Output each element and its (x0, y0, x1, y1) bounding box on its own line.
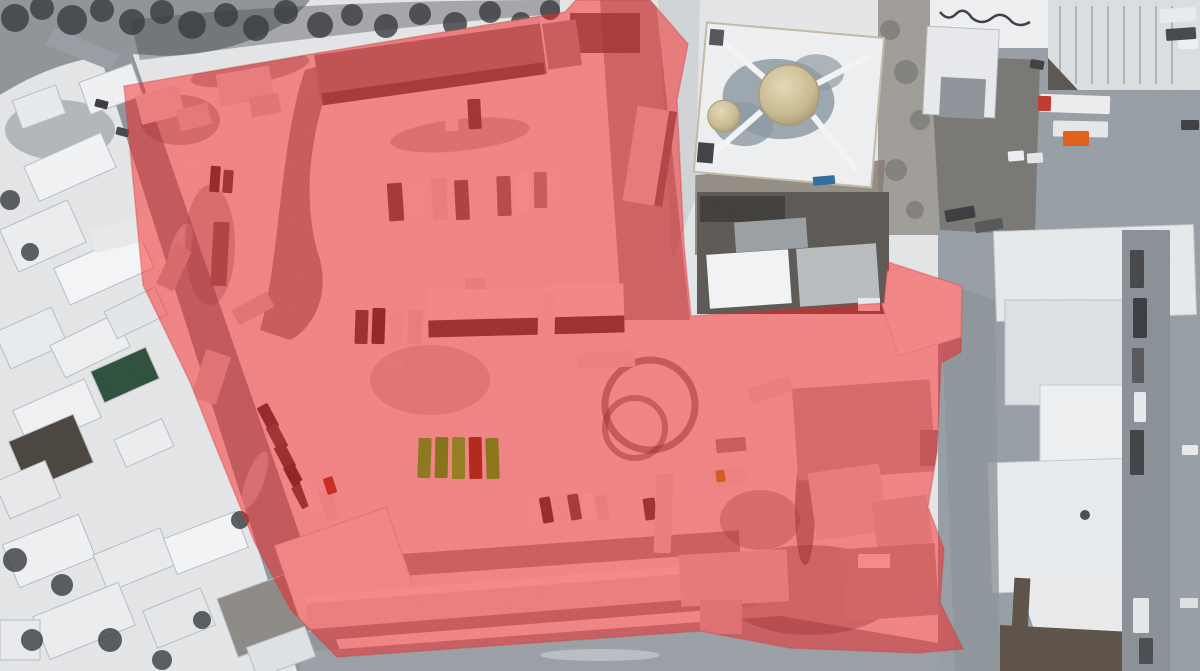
aerial-scene (0, 0, 1200, 671)
film-grain (0, 0, 1200, 671)
aerial-screenshot (0, 0, 1200, 671)
